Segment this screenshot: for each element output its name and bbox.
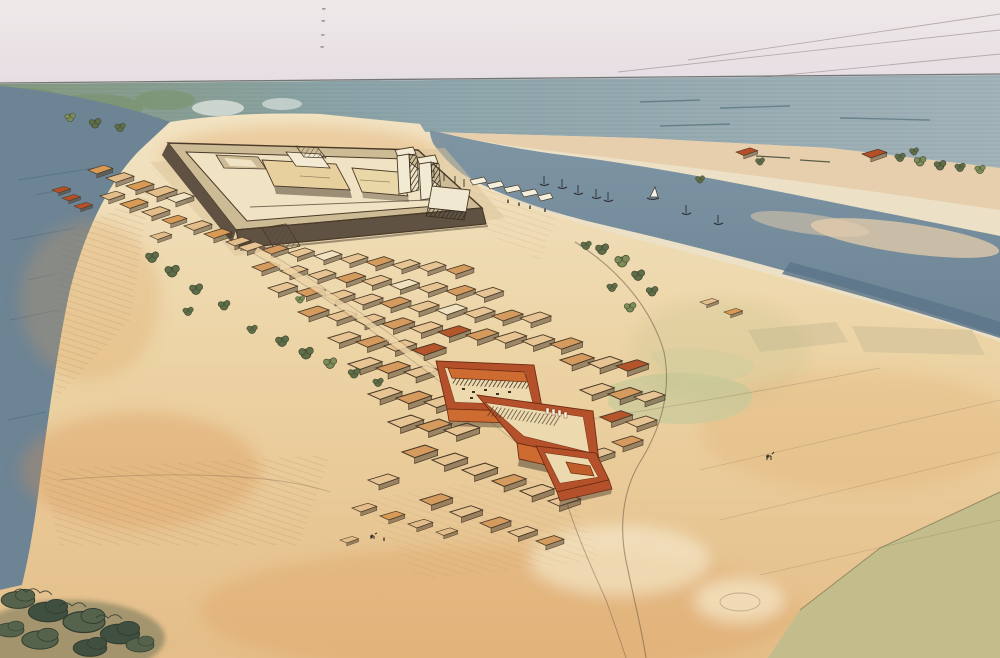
painting-canvas: [0, 0, 1000, 658]
shrub: [0, 621, 24, 637]
watercolor-reconstruction-illustration: [0, 0, 1000, 658]
